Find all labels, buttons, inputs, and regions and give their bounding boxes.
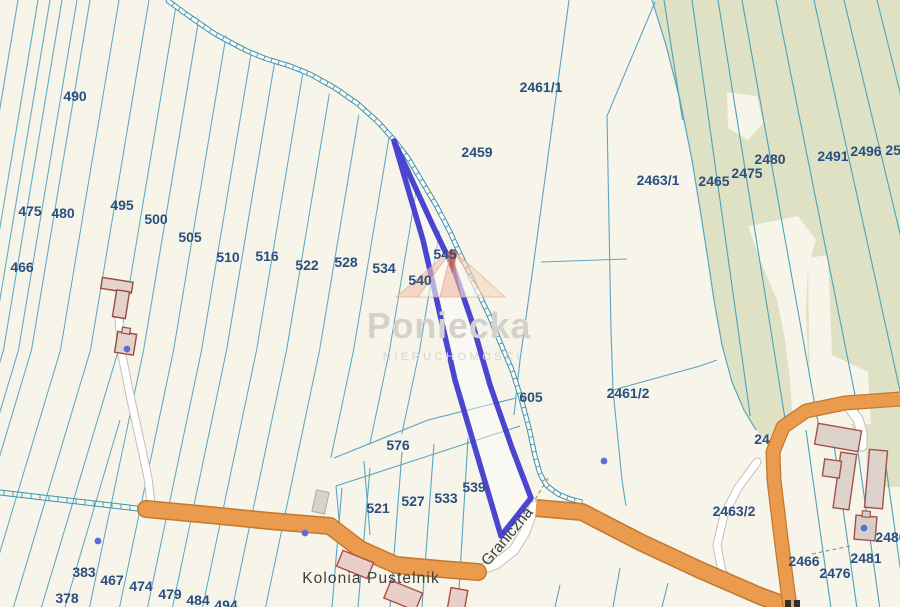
svg-text:383: 383 [72, 564, 96, 580]
svg-text:Kolonia Pustelnik: Kolonia Pustelnik [302, 570, 440, 587]
svg-text:2481: 2481 [850, 550, 881, 566]
svg-text:2463/1: 2463/1 [637, 172, 680, 188]
svg-text:Poniecka: Poniecka [367, 305, 532, 346]
svg-text:533: 533 [434, 490, 458, 506]
svg-text:2463/2: 2463/2 [713, 503, 756, 519]
svg-text:522: 522 [295, 257, 319, 273]
svg-text:2459: 2459 [461, 144, 492, 160]
svg-text:545: 545 [433, 246, 457, 262]
svg-text:480: 480 [51, 205, 75, 221]
svg-text:479: 479 [158, 586, 182, 602]
svg-text:2480: 2480 [754, 151, 785, 167]
svg-text:540: 540 [408, 272, 432, 288]
svg-text:378: 378 [55, 590, 79, 606]
svg-text:2461/2: 2461/2 [607, 385, 650, 401]
svg-text:521: 521 [366, 500, 390, 516]
svg-text:516: 516 [255, 248, 279, 264]
svg-text:605: 605 [519, 389, 543, 405]
svg-text:576: 576 [386, 437, 410, 453]
svg-text:494: 494 [214, 597, 238, 607]
svg-text:2476: 2476 [819, 565, 850, 581]
svg-text:2491: 2491 [817, 148, 848, 164]
svg-text:505: 505 [178, 229, 202, 245]
svg-text:2466: 2466 [788, 553, 819, 569]
svg-text:467: 467 [100, 572, 124, 588]
svg-text:534: 534 [372, 260, 396, 276]
svg-text:2475: 2475 [731, 165, 762, 181]
svg-text:2501: 2501 [885, 142, 900, 158]
svg-text:500: 500 [144, 211, 168, 227]
svg-text:2461/1: 2461/1 [520, 79, 563, 95]
svg-text:2496: 2496 [850, 143, 881, 159]
svg-text:466: 466 [10, 259, 34, 275]
svg-text:490: 490 [63, 88, 87, 104]
svg-text:2486: 2486 [875, 529, 900, 545]
svg-text:NIERUCHOMOŚCI: NIERUCHOMOŚCI [383, 350, 523, 363]
svg-text:484: 484 [186, 592, 210, 607]
svg-text:2465: 2465 [698, 173, 729, 189]
svg-text:475: 475 [18, 203, 42, 219]
svg-text:495: 495 [110, 197, 134, 213]
svg-text:528: 528 [334, 254, 358, 270]
svg-text:539: 539 [462, 479, 486, 495]
svg-text:510: 510 [216, 249, 240, 265]
svg-text:474: 474 [129, 578, 153, 594]
svg-text:527: 527 [401, 493, 425, 509]
svg-text:24: 24 [754, 431, 770, 447]
